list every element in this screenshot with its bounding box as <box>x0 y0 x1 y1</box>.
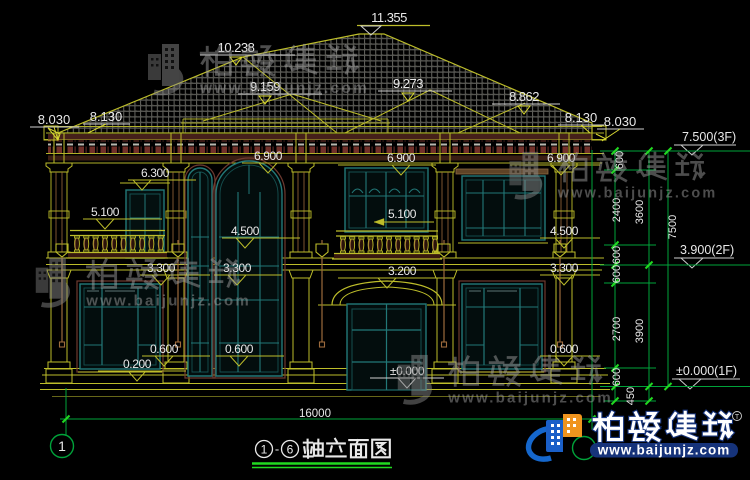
svg-text:-: - <box>275 442 279 457</box>
svg-text:600: 600 <box>611 246 623 264</box>
svg-text:3.900(2F): 3.900(2F) <box>680 243 734 257</box>
svg-text:6.900: 6.900 <box>387 151 416 165</box>
svg-text:5.100: 5.100 <box>388 207 417 221</box>
svg-text:0.600: 0.600 <box>150 342 179 356</box>
svg-text:6.900: 6.900 <box>547 151 576 165</box>
svg-text:6.900: 6.900 <box>254 149 283 163</box>
svg-text:600: 600 <box>611 368 623 386</box>
svg-text:0.200: 0.200 <box>123 357 152 371</box>
svg-text:11.355: 11.355 <box>371 10 407 25</box>
svg-text:www.baijunjz.com: www.baijunjz.com <box>447 389 613 406</box>
svg-text:9.273: 9.273 <box>393 76 423 91</box>
svg-text:±0.000(1F): ±0.000(1F) <box>676 364 737 378</box>
svg-text:1: 1 <box>261 443 268 457</box>
svg-text:7.500(3F): 7.500(3F) <box>682 130 736 144</box>
svg-text:4.500: 4.500 <box>231 224 260 238</box>
svg-text:8.130: 8.130 <box>565 110 598 125</box>
svg-text:6: 6 <box>287 443 294 457</box>
svg-text:8.862: 8.862 <box>509 89 539 104</box>
svg-text:1: 1 <box>58 438 66 454</box>
svg-text:4.500: 4.500 <box>550 224 579 238</box>
svg-text:450: 450 <box>625 387 637 405</box>
svg-text:8.030: 8.030 <box>38 112 71 127</box>
svg-text:8.130: 8.130 <box>90 109 123 124</box>
svg-text:6.300: 6.300 <box>141 166 170 180</box>
svg-text:0.600: 0.600 <box>550 342 579 356</box>
svg-text:www.baijunjz.com: www.baijunjz.com <box>85 292 251 309</box>
svg-text:3900: 3900 <box>634 319 646 343</box>
svg-text:www.baijunjz.com: www.baijunjz.com <box>199 80 369 97</box>
svg-text:600: 600 <box>611 265 623 283</box>
svg-text:3600: 3600 <box>634 200 646 224</box>
svg-text:0.600: 0.600 <box>225 342 254 356</box>
svg-text:T: T <box>735 414 740 421</box>
svg-text:www.baijunjz.com: www.baijunjz.com <box>557 185 718 201</box>
svg-text:8.030: 8.030 <box>604 114 637 129</box>
svg-text:7500: 7500 <box>667 215 679 239</box>
svg-text:3.200: 3.200 <box>388 264 417 278</box>
svg-text:2700: 2700 <box>611 317 623 341</box>
svg-text:16000: 16000 <box>299 408 331 420</box>
svg-text:3.300: 3.300 <box>550 261 579 275</box>
svg-text:www.baijunjz.com: www.baijunjz.com <box>597 443 731 458</box>
svg-text:5.100: 5.100 <box>91 205 120 219</box>
